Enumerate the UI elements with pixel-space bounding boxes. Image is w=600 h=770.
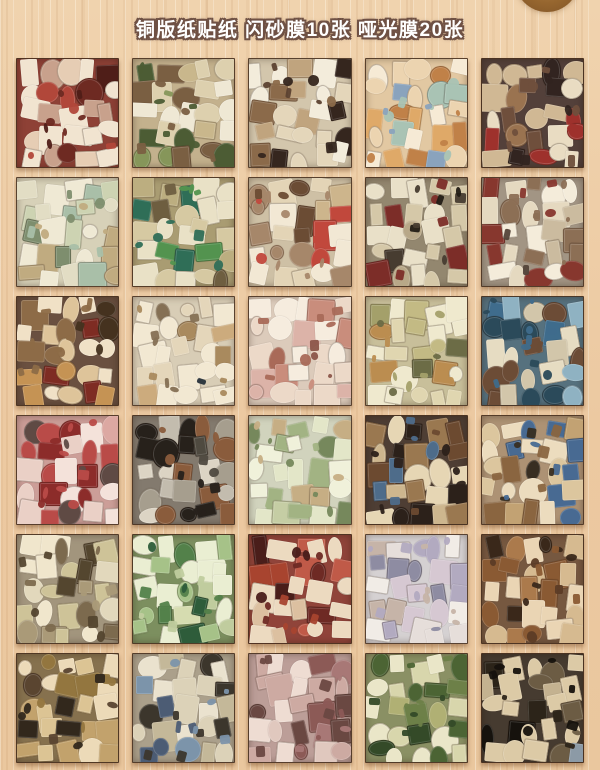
sticker-accent — [150, 330, 159, 340]
sticker-accent — [137, 143, 147, 154]
sticker — [55, 383, 84, 406]
sticker — [335, 58, 352, 79]
sticker — [219, 618, 235, 637]
sticker — [331, 620, 351, 638]
sticker — [404, 58, 431, 80]
sticker-accent — [209, 482, 221, 493]
sticker — [197, 296, 214, 319]
sticker-accent — [219, 734, 230, 744]
sticker-accent — [442, 255, 447, 265]
sticker-accent — [30, 338, 35, 350]
sticker-accent — [167, 620, 177, 632]
sticker-accent — [88, 616, 98, 628]
sticker — [213, 58, 235, 81]
sticker — [198, 624, 220, 644]
sticker — [568, 654, 584, 671]
sticker — [386, 415, 406, 445]
sticker — [404, 479, 426, 503]
sticker-accent — [199, 454, 209, 465]
sticker-sheet-9-black-cat-taupe — [365, 177, 468, 287]
sticker — [216, 200, 235, 219]
sticker-accent — [570, 124, 577, 131]
sticker — [171, 146, 193, 168]
sticker-accent — [96, 343, 104, 354]
sticker-accent — [77, 470, 89, 481]
sticker-accent — [333, 473, 344, 480]
sticker — [566, 437, 584, 463]
sticker-accent — [189, 104, 198, 109]
sticker — [445, 338, 468, 358]
sticker — [150, 556, 170, 573]
sticker — [16, 324, 32, 342]
sticker — [248, 262, 269, 287]
sticker — [367, 124, 385, 149]
sticker-sheet-5-chocolate-dark-brown — [481, 58, 584, 168]
sticker-sheet-30-dark-cats-food — [481, 653, 584, 763]
sticker-accent — [450, 609, 455, 615]
sticker-accent — [439, 140, 448, 146]
sticker-accent — [537, 445, 550, 459]
sticker — [132, 102, 157, 117]
sticker-accent — [49, 733, 59, 743]
sticker — [16, 456, 44, 483]
sticker-accent — [440, 695, 445, 701]
sticker-accent — [552, 710, 562, 722]
sticker — [56, 576, 78, 598]
sticker — [450, 58, 468, 76]
sticker-accent — [385, 336, 391, 347]
sticker — [390, 654, 405, 672]
sticker — [558, 506, 583, 525]
sticker-accent — [165, 378, 170, 388]
sticker-sheet-12-ice-cream-cream-navy — [132, 296, 235, 406]
sticker-accent — [264, 655, 272, 665]
sticker-accent — [41, 308, 52, 314]
sticker — [501, 359, 521, 383]
sticker — [369, 203, 384, 227]
sticker-accent — [105, 142, 115, 149]
sticker — [104, 197, 119, 212]
sticker — [521, 738, 549, 763]
sticker — [174, 271, 195, 287]
sticker — [526, 177, 541, 190]
sticker-sheet-13-pink-cream-sweets — [248, 296, 351, 406]
sticker — [445, 296, 468, 322]
sticker — [384, 346, 409, 362]
sticker — [444, 389, 462, 406]
sticker-accent — [534, 210, 540, 221]
sticker-accent — [167, 122, 175, 130]
sticker — [270, 244, 285, 260]
sticker-sheet-10-white-cat-taupe — [481, 177, 584, 287]
sticker-accent — [310, 340, 319, 351]
sticker-accent — [573, 594, 580, 604]
sticker — [452, 743, 468, 763]
sticker — [560, 77, 584, 101]
sticker-accent — [389, 128, 395, 134]
sticker-sheet-grid — [16, 58, 584, 763]
sticker-accent — [491, 472, 502, 480]
sticker — [193, 120, 218, 141]
sticker-accent — [407, 662, 415, 668]
sticker — [76, 694, 95, 714]
sticker-accent — [448, 376, 455, 384]
sticker — [220, 503, 236, 525]
sticker-accent — [513, 668, 521, 674]
sticker — [331, 741, 352, 761]
sticker — [521, 498, 540, 525]
sticker — [446, 679, 467, 696]
sticker — [335, 501, 351, 525]
sticker — [447, 268, 468, 285]
sticker-accent — [369, 698, 380, 705]
sticker-accent — [413, 223, 420, 228]
sticker-accent — [528, 81, 539, 92]
sticker-accent — [153, 233, 163, 242]
sticker-sheet-11-donut-dark-brown — [16, 296, 119, 406]
sticker — [132, 199, 152, 222]
sticker-accent — [331, 306, 343, 315]
sticker-accent — [255, 189, 262, 199]
sticker-accent — [526, 335, 532, 345]
sticker — [104, 81, 119, 99]
sticker — [500, 455, 522, 485]
sticker-accent — [520, 188, 527, 199]
sticker — [369, 554, 385, 571]
sticker-sheet-14-khaki-clothing — [365, 296, 468, 406]
sticker-accent — [371, 355, 376, 363]
sticker — [94, 385, 116, 406]
page-title: 铜版纸贴纸 闪砂膜10张 哑光膜20张 — [0, 15, 600, 42]
sticker — [336, 577, 351, 596]
sticker-accent — [25, 580, 36, 586]
sticker-accent — [421, 543, 428, 549]
sticker — [214, 80, 233, 97]
sticker-accent — [523, 265, 529, 275]
sticker-sheet-22-green-garden — [132, 534, 235, 644]
sticker-sheet-6-pale-green-cream — [16, 177, 119, 287]
sticker — [22, 384, 44, 406]
sticker — [38, 745, 54, 762]
sticker-accent — [509, 194, 520, 205]
sticker — [502, 700, 520, 716]
sticker-sheet-19-vintage-dark-brown — [365, 415, 468, 525]
sticker — [39, 270, 60, 287]
sticker-accent — [164, 183, 176, 196]
sticker — [560, 563, 576, 586]
sticker — [54, 696, 75, 718]
sticker — [405, 316, 428, 336]
sticker — [254, 121, 275, 140]
product-image-page: 铜版纸贴纸 闪砂膜10张 哑光膜20张 — [0, 0, 600, 770]
sticker-accent — [302, 506, 312, 517]
sticker-accent — [390, 497, 400, 506]
sticker-sheet-4-pastry-peach — [365, 58, 468, 168]
sticker-accent — [317, 314, 325, 322]
sticker-accent — [96, 247, 103, 258]
sticker-accent — [555, 585, 564, 594]
sticker — [137, 463, 154, 479]
sticker — [285, 435, 302, 453]
sticker — [386, 747, 402, 763]
sticker-accent — [290, 626, 297, 634]
sticker — [288, 576, 306, 596]
sticker-sheet-16-pink-red-sweets — [16, 415, 119, 525]
sticker — [136, 676, 153, 695]
sticker-accent — [189, 313, 199, 322]
sticker — [17, 620, 39, 644]
sticker-accent — [81, 586, 87, 595]
sticker — [104, 507, 119, 525]
sticker — [306, 579, 334, 605]
sticker — [219, 121, 235, 143]
sticker — [287, 58, 313, 78]
sticker-accent — [203, 608, 211, 613]
sticker-accent — [545, 76, 553, 84]
sticker-accent — [566, 553, 578, 561]
sticker-accent — [163, 131, 170, 137]
sticker-accent — [68, 103, 79, 114]
sticker — [248, 383, 264, 400]
sticker — [383, 147, 405, 168]
sticker-accent — [263, 616, 270, 625]
sticker-sheet-1-strawberry-dessert-red — [16, 58, 119, 168]
sticker — [445, 502, 468, 525]
sticker-accent — [312, 442, 320, 451]
sticker-sheet-24-lavender-cream — [365, 534, 468, 644]
sticker-accent — [411, 508, 419, 516]
wood-knot-circle — [515, 0, 579, 12]
sticker — [295, 390, 311, 406]
sticker — [132, 177, 155, 199]
sticker — [99, 744, 119, 763]
sticker-accent — [27, 151, 33, 158]
sticker — [485, 534, 505, 559]
sticker-sheet-27-tan-blue-clothing — [132, 653, 235, 763]
sticker-accent — [266, 190, 271, 202]
sticker — [447, 697, 468, 719]
sticker — [484, 581, 499, 600]
sticker — [40, 653, 57, 671]
sticker — [392, 507, 411, 525]
sticker-accent — [406, 416, 415, 424]
sticker — [390, 318, 406, 344]
sticker-sheet-20-tan-bags-blue — [481, 415, 584, 525]
sticker-accent — [410, 436, 418, 442]
sticker — [16, 180, 39, 201]
sticker-accent — [220, 377, 228, 383]
sticker — [410, 386, 429, 405]
sticker — [294, 227, 311, 243]
sticker-accent — [295, 746, 305, 752]
sticker-accent — [256, 746, 266, 757]
sticker — [382, 620, 399, 640]
sticker — [337, 384, 352, 399]
sticker — [95, 561, 119, 583]
sticker-sheet-2-sandwich-tan-green — [132, 58, 235, 168]
sticker — [426, 654, 445, 674]
sticker — [558, 623, 584, 644]
sticker — [481, 197, 498, 226]
sticker-accent — [529, 359, 539, 367]
sticker-accent — [55, 347, 62, 353]
sticker-sheet-28-mauve-pink-sweets — [248, 653, 351, 763]
sticker — [425, 243, 441, 261]
sticker — [308, 505, 338, 525]
sticker-accent — [389, 388, 397, 396]
sticker — [365, 259, 393, 287]
sticker — [292, 127, 313, 143]
sticker — [56, 720, 82, 737]
sticker — [41, 509, 59, 525]
sticker-sheet-21-taupe-animals — [16, 534, 119, 644]
sticker-sheet-23-maroon-plaid — [248, 534, 351, 644]
sticker — [78, 262, 107, 287]
sticker-accent — [422, 592, 432, 605]
sticker-accent — [410, 712, 418, 717]
sticker — [102, 623, 119, 640]
sticker — [99, 597, 119, 622]
sticker — [521, 388, 541, 406]
sticker — [248, 221, 272, 246]
sticker-accent — [139, 586, 151, 599]
sticker-accent — [69, 244, 79, 250]
sticker-accent — [340, 726, 351, 733]
sticker-sheet-7-vegetable-green-tan — [132, 177, 235, 287]
sticker-sheet-26-brown-bakery — [16, 653, 119, 763]
sticker — [290, 598, 308, 621]
sticker — [82, 223, 98, 239]
sticker-accent — [425, 586, 431, 593]
sticker-accent — [436, 194, 445, 206]
sticker — [365, 575, 390, 594]
sticker-accent — [520, 155, 530, 165]
sticker-accent — [96, 630, 106, 642]
sticker-accent — [326, 506, 333, 518]
sticker — [55, 628, 69, 644]
sticker-accent — [394, 458, 403, 468]
sticker — [215, 534, 233, 561]
sticker-accent — [45, 118, 54, 126]
sticker-accent — [569, 685, 575, 694]
sticker — [500, 383, 518, 406]
sticker-accent — [402, 730, 412, 736]
sticker-sheet-8-cake-cream-beige — [248, 177, 351, 287]
sticker-sheet-3-coffee-cake-cream — [248, 58, 351, 168]
sticker-accent — [179, 186, 190, 191]
sticker — [18, 720, 39, 739]
sticker — [20, 59, 39, 87]
sticker-accent — [105, 584, 118, 597]
sticker-accent — [18, 557, 27, 568]
sticker-accent — [376, 319, 384, 327]
sticker-accent — [78, 202, 88, 210]
sticker-sheet-18-green-tea-cream — [248, 415, 351, 525]
sticker — [312, 416, 329, 434]
sticker-accent — [95, 674, 105, 683]
sticker — [250, 482, 269, 498]
sticker — [560, 384, 584, 406]
sticker — [365, 181, 387, 200]
sticker — [334, 362, 352, 385]
sticker — [288, 151, 310, 168]
sticker-accent — [551, 546, 559, 554]
sticker-sheet-17-gray-bear-items — [132, 415, 235, 525]
sticker — [54, 458, 76, 484]
sticker-accent — [193, 229, 204, 241]
sticker-accent — [283, 623, 288, 631]
sticker-accent — [173, 711, 179, 720]
sticker-sheet-15-denim-blue-brown — [481, 296, 584, 406]
sticker-accent — [568, 155, 575, 167]
sticker — [172, 479, 196, 502]
sticker — [523, 248, 545, 266]
sticker — [539, 501, 555, 525]
sticker-accent — [316, 734, 321, 739]
sticker-accent — [258, 318, 269, 324]
sticker — [82, 500, 103, 523]
sticker — [562, 480, 584, 501]
sticker — [288, 364, 310, 381]
sticker — [81, 625, 98, 642]
sticker-accent — [400, 542, 412, 553]
sticker — [272, 225, 294, 241]
sticker-accent — [273, 80, 280, 87]
sticker — [269, 149, 289, 168]
sticker-sheet-29-olive-bento-food — [365, 653, 468, 763]
sticker-accent — [420, 373, 428, 379]
sticker — [213, 575, 232, 595]
sticker — [369, 653, 392, 678]
sticker-accent — [136, 304, 142, 312]
sticker-accent — [503, 228, 511, 240]
sticker-sheet-25-chocolate-treats — [481, 534, 584, 644]
sticker-accent — [258, 153, 267, 158]
sticker — [366, 677, 390, 697]
sticker — [274, 741, 295, 763]
sticker-accent — [313, 236, 320, 243]
